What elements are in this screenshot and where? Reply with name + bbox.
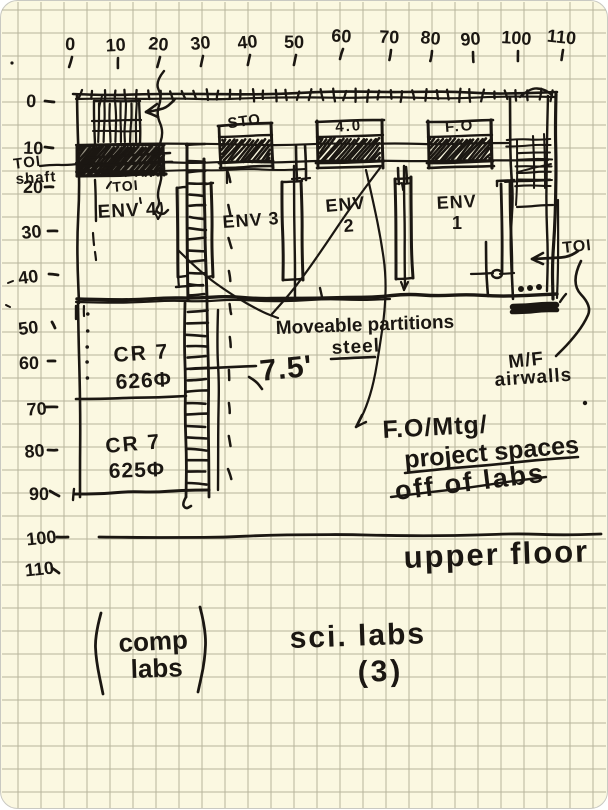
svg-text:TOI: TOI xyxy=(562,237,593,257)
svg-text:0: 0 xyxy=(65,34,76,54)
svg-text:7.5': 7.5' xyxy=(258,350,314,388)
svg-text:ENV: ENV xyxy=(436,191,477,213)
svg-text:10: 10 xyxy=(105,34,126,55)
svg-text:0: 0 xyxy=(26,91,37,111)
svg-text:sci. labs: sci. labs xyxy=(289,617,426,655)
svg-text:60: 60 xyxy=(331,25,352,46)
svg-text:60: 60 xyxy=(19,353,39,373)
svg-text:shaft: shaft xyxy=(15,168,57,188)
svg-text:2: 2 xyxy=(343,215,354,236)
svg-text:F.O/Mtg/: F.O/Mtg/ xyxy=(382,411,489,444)
svg-text:626Φ: 626Φ xyxy=(115,368,172,394)
svg-text:1: 1 xyxy=(452,213,462,233)
svg-text:50: 50 xyxy=(17,317,39,339)
svg-text:4.0: 4.0 xyxy=(335,117,363,136)
svg-text:40: 40 xyxy=(17,266,39,288)
svg-text:30: 30 xyxy=(189,32,211,54)
svg-text:labs: labs xyxy=(130,652,183,684)
svg-text:110: 110 xyxy=(24,558,55,581)
svg-text:40: 40 xyxy=(236,31,258,53)
svg-text:100: 100 xyxy=(25,527,57,550)
svg-text:70: 70 xyxy=(379,27,400,48)
svg-text:F.O: F.O xyxy=(444,117,474,136)
svg-text:110: 110 xyxy=(546,26,577,49)
svg-text:30: 30 xyxy=(21,221,43,243)
svg-text:70: 70 xyxy=(26,398,47,419)
svg-text:TOI: TOI xyxy=(112,177,139,195)
svg-text:steel: steel xyxy=(331,335,380,358)
svg-text:90: 90 xyxy=(29,484,49,504)
svg-text:90: 90 xyxy=(460,28,482,50)
svg-text:80: 80 xyxy=(24,440,46,462)
svg-text:80: 80 xyxy=(420,27,442,49)
svg-text:100: 100 xyxy=(501,27,532,49)
svg-text:20: 20 xyxy=(148,33,170,55)
svg-text:CR 7: CR 7 xyxy=(104,430,162,458)
svg-text:625Φ: 625Φ xyxy=(108,458,165,483)
svg-text:upper floor: upper floor xyxy=(403,534,590,575)
svg-text:ENV 4: ENV 4 xyxy=(97,199,158,223)
svg-text:(3): (3) xyxy=(357,654,404,689)
svg-text:CR 7: CR 7 xyxy=(113,340,170,367)
svg-text:50: 50 xyxy=(284,32,304,52)
